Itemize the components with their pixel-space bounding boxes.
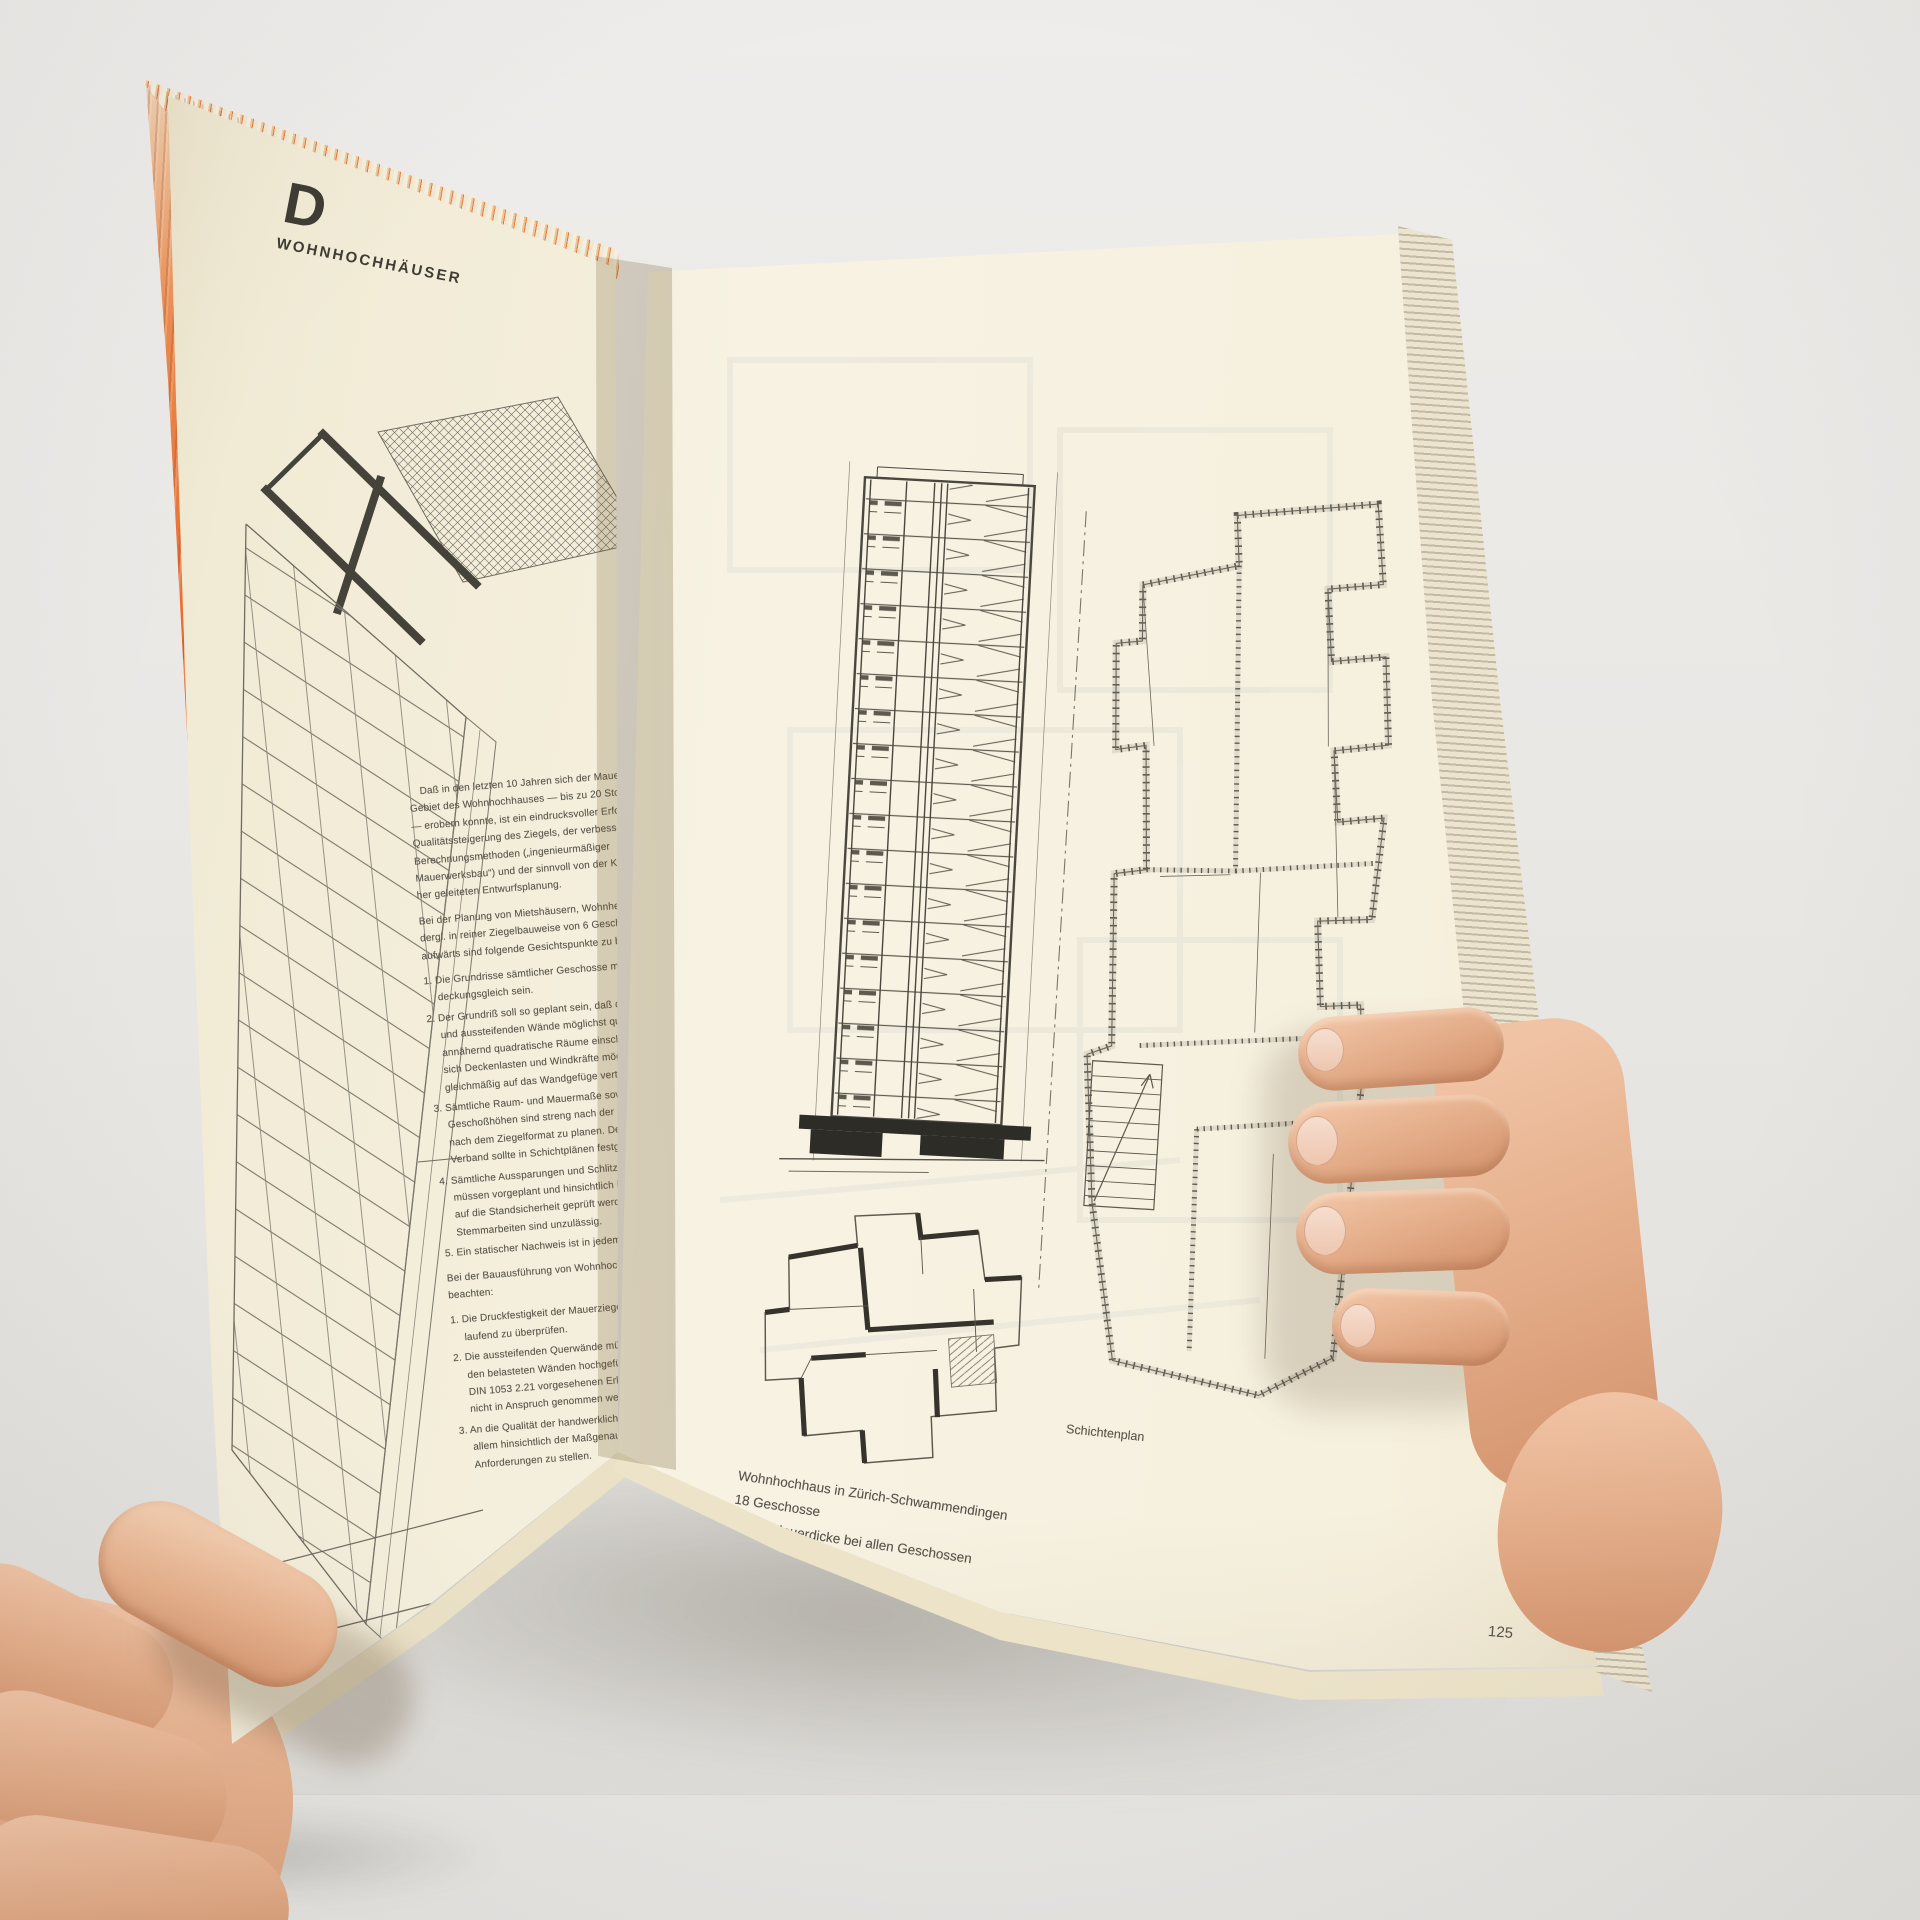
fingernail [1304, 1206, 1346, 1256]
right-page-number: 125 [1487, 1623, 1513, 1642]
fingernail [1340, 1304, 1376, 1348]
section-letter-right: D [1583, 329, 1617, 381]
fingernail [1296, 1116, 1338, 1166]
fingernail [1306, 1028, 1344, 1072]
book-photo-scene: D WOHNHOCHHÄUSER D [0, 0, 1920, 1920]
small-floor-plan-drawing [738, 1193, 1032, 1505]
